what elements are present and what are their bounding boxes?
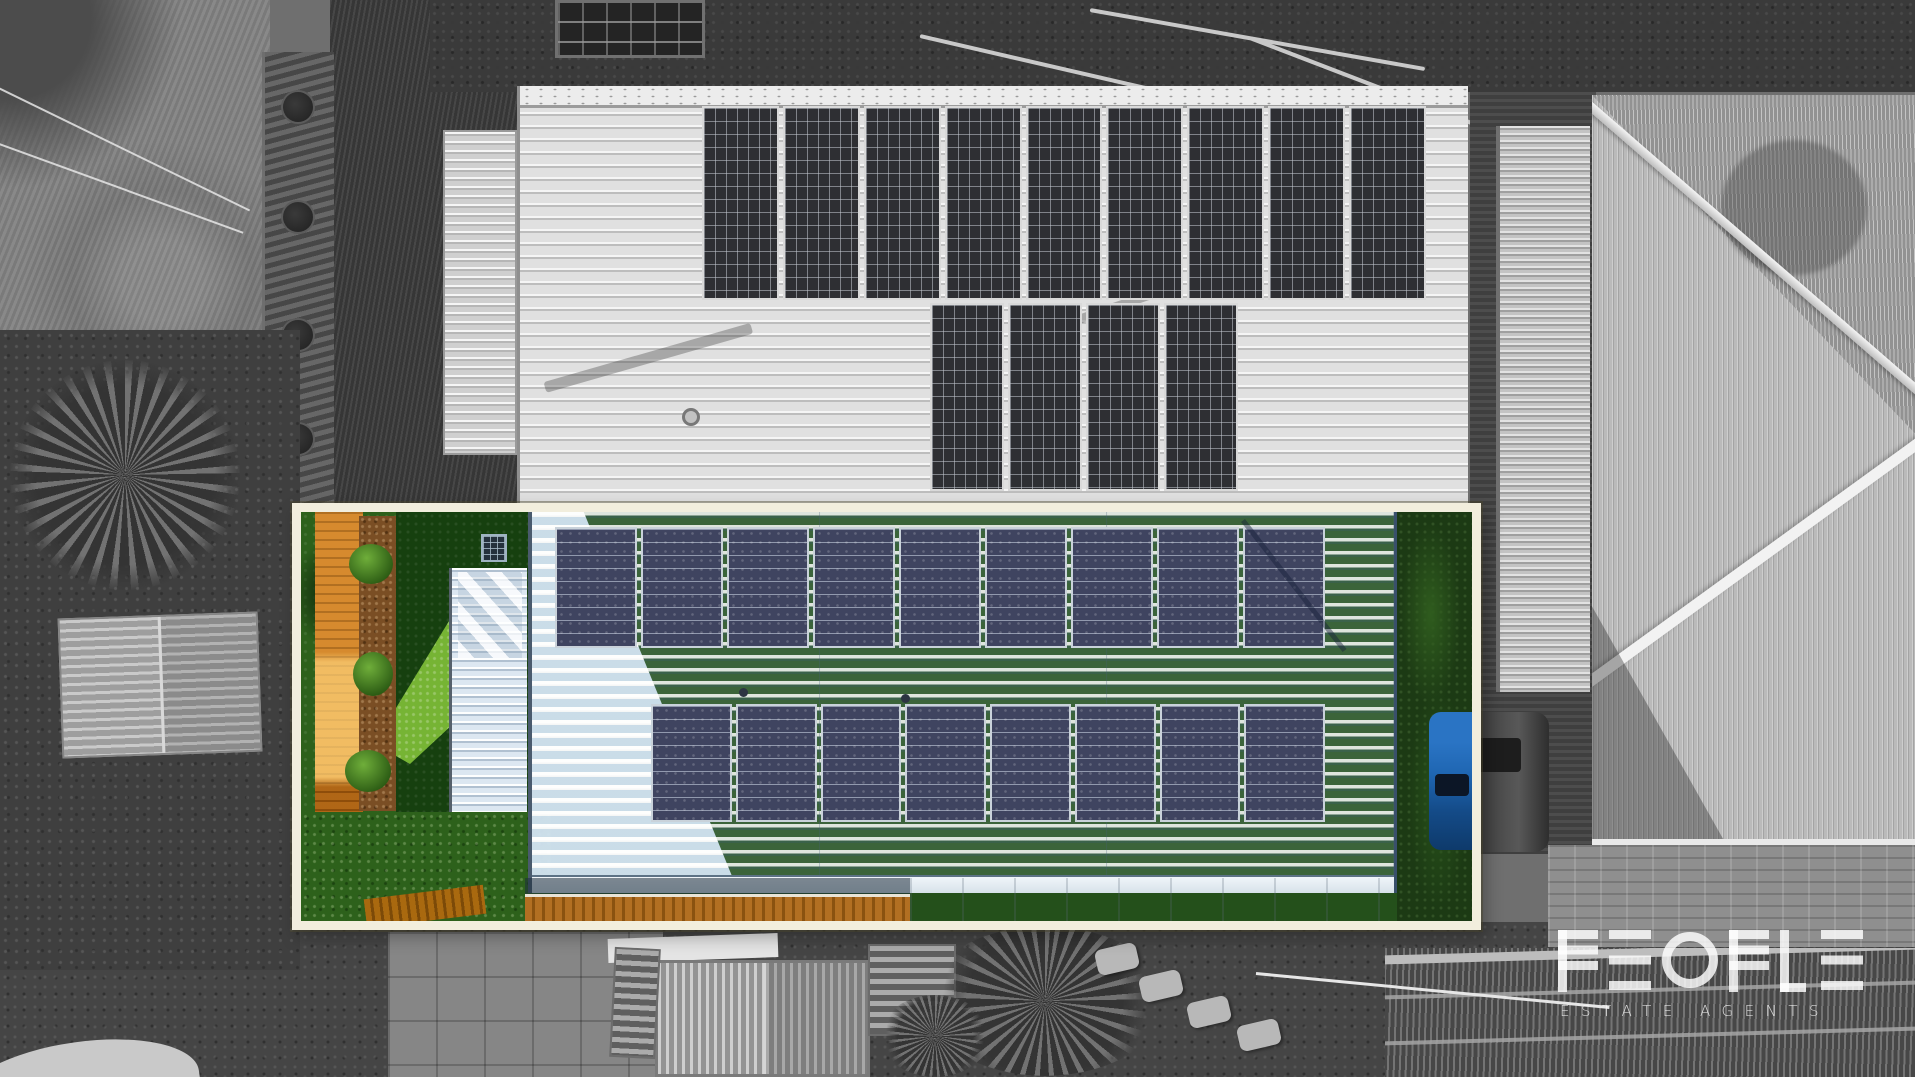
property-boundary-highlight [292, 503, 1481, 930]
solar-panel [945, 106, 1022, 300]
shed-roof-right-slope [763, 963, 868, 1074]
solar-panel [905, 704, 986, 822]
solar-panel [641, 527, 723, 648]
stepping-stone [1186, 995, 1233, 1030]
solar-panel [1349, 106, 1426, 300]
solar-panel [736, 704, 817, 822]
shed-roof-left-slope [60, 617, 163, 756]
solar-panel [555, 527, 637, 648]
solar-panel [1106, 106, 1183, 300]
neighbour-house-roof [1592, 95, 1915, 847]
solar-array-colour-lower-row [651, 704, 1325, 822]
brand-name [1558, 930, 1863, 992]
shrub [349, 544, 393, 584]
brand-tagline: ESTATE AGENTS [1560, 1002, 1830, 1020]
solar-panel [1071, 527, 1153, 648]
rear-shed [655, 960, 870, 1077]
shed-roof-left-slope [658, 963, 763, 1074]
solar-panel [1086, 303, 1160, 491]
solar-panel [864, 106, 941, 300]
solar-panel [783, 106, 860, 300]
palm-tree-left [10, 360, 240, 590]
solar-panel [1026, 106, 1103, 300]
brand-watermark: ESTATE AGENTS [1558, 930, 1915, 1030]
side-awning-roof [443, 130, 517, 455]
solar-panel [1164, 303, 1238, 491]
solar-panel [1243, 527, 1325, 648]
solar-panel [702, 106, 779, 300]
solar-panel [930, 303, 1004, 491]
parked-car-rear-greyscale [1473, 712, 1549, 852]
solar-panel [1160, 704, 1241, 822]
brand-letter-o [1662, 932, 1718, 988]
parked-car-front-blue [1429, 712, 1472, 850]
garden-shed [58, 612, 263, 759]
timber-pallet [609, 947, 661, 1059]
solar-panel [1268, 106, 1345, 300]
aerial-drone-photo: ESTATE AGENTS [0, 0, 1915, 1077]
clothesline-wires [0, 78, 300, 278]
brand-letter-p [1729, 930, 1769, 992]
scaffold-beams [920, 0, 1520, 92]
solar-panel [985, 527, 1067, 648]
stepping-stone [1236, 1018, 1283, 1053]
solar-panel [1187, 106, 1264, 300]
solar-panel [1075, 704, 1156, 822]
solar-panel [727, 527, 809, 648]
wire [0, 78, 250, 211]
roof-vent [901, 694, 910, 703]
brand-letter-p [1558, 930, 1598, 992]
solar-panel [899, 527, 981, 648]
brand-letter-l [1780, 930, 1810, 992]
boundary-awning-roof [1496, 126, 1590, 692]
solar-array-colour-upper-row [555, 527, 1325, 648]
eave-shadow [525, 878, 910, 894]
stepping-stone [1094, 942, 1141, 977]
solar-panel [1244, 704, 1325, 822]
brand-letter-e [1609, 930, 1651, 992]
solar-panel [990, 704, 1071, 822]
meter-box [481, 534, 507, 562]
palm-tree-small [880, 995, 990, 1077]
highlighted-property [301, 512, 1472, 921]
rear-deck [525, 894, 910, 921]
roof-vent [739, 688, 748, 697]
solar-array-grey-upper-row [702, 106, 1426, 300]
brand-letter-e [1821, 930, 1863, 992]
solar-array-grey-lower-row [930, 303, 1238, 491]
solar-panel [813, 527, 895, 648]
pergola-skylight [555, 0, 705, 58]
solar-panel [651, 704, 732, 822]
solar-panel [1157, 527, 1239, 648]
roof-stain [1721, 140, 1866, 275]
wire [0, 136, 243, 234]
shrub [345, 750, 391, 792]
shrub [353, 652, 393, 696]
roof-vent [682, 408, 700, 426]
stepping-stone [1138, 969, 1185, 1004]
solar-panel [821, 704, 902, 822]
solar-panel [1008, 303, 1082, 491]
shed-roof-right-slope [158, 614, 261, 753]
gable-edge [1592, 432, 1915, 705]
stepping-stones [1096, 946, 1296, 1061]
rear-awning [910, 878, 1397, 921]
